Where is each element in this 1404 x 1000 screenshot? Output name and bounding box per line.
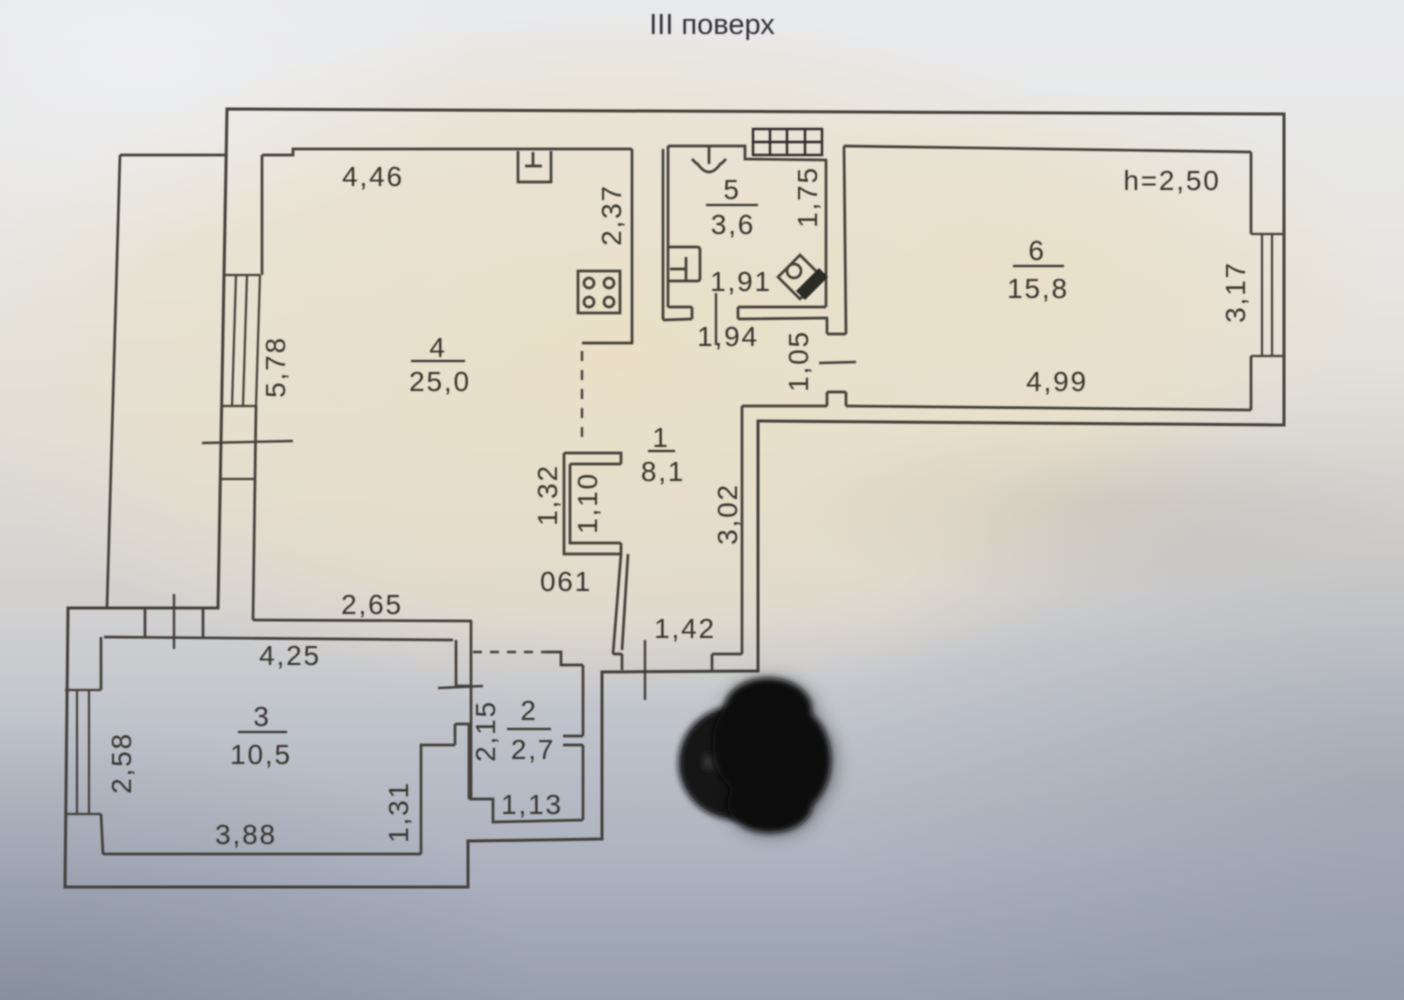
svg-text:6: 6 bbox=[1028, 235, 1045, 266]
svg-text:1,75: 1,75 bbox=[792, 166, 823, 228]
svg-text:1,31: 1,31 bbox=[383, 781, 414, 843]
svg-text:10,5: 10,5 bbox=[230, 739, 292, 770]
svg-text:061: 061 bbox=[540, 566, 592, 597]
svg-text:4,25: 4,25 bbox=[259, 640, 321, 671]
svg-text:1,05: 1,05 bbox=[783, 330, 814, 392]
svg-text:2,15: 2,15 bbox=[470, 700, 501, 762]
svg-text:1,94: 1,94 bbox=[697, 321, 759, 352]
svg-text:h=2,50: h=2,50 bbox=[1123, 165, 1220, 196]
svg-text:1,91: 1,91 bbox=[710, 266, 772, 297]
svg-text:ІІІ поверх: ІІІ поверх bbox=[649, 9, 775, 41]
svg-text:1,10: 1,10 bbox=[572, 472, 603, 534]
svg-text:1,13: 1,13 bbox=[501, 789, 563, 820]
svg-text:3,6: 3,6 bbox=[711, 209, 755, 240]
svg-text:8,1: 8,1 bbox=[641, 456, 685, 487]
svg-text:25,0: 25,0 bbox=[409, 366, 471, 397]
svg-text:2: 2 bbox=[520, 695, 537, 726]
svg-text:4,99: 4,99 bbox=[1026, 366, 1088, 397]
svg-text:5,78: 5,78 bbox=[260, 336, 291, 398]
svg-text:4,46: 4,46 bbox=[342, 161, 404, 192]
svg-text:2,37: 2,37 bbox=[596, 184, 627, 246]
svg-text:3: 3 bbox=[253, 701, 270, 732]
svg-text:1,42: 1,42 bbox=[654, 613, 716, 644]
svg-text:15,8: 15,8 bbox=[1007, 273, 1069, 304]
svg-text:1,32: 1,32 bbox=[532, 464, 563, 526]
svg-text:4: 4 bbox=[429, 332, 446, 363]
svg-text:3,88: 3,88 bbox=[215, 819, 277, 850]
svg-text:5: 5 bbox=[723, 174, 740, 205]
svg-text:3,02: 3,02 bbox=[712, 483, 743, 545]
svg-text:2,65: 2,65 bbox=[341, 589, 403, 620]
svg-text:1: 1 bbox=[652, 422, 669, 453]
svg-text:3,17: 3,17 bbox=[1220, 261, 1251, 323]
svg-text:2,7: 2,7 bbox=[511, 734, 555, 765]
svg-text:2,58: 2,58 bbox=[106, 732, 137, 794]
